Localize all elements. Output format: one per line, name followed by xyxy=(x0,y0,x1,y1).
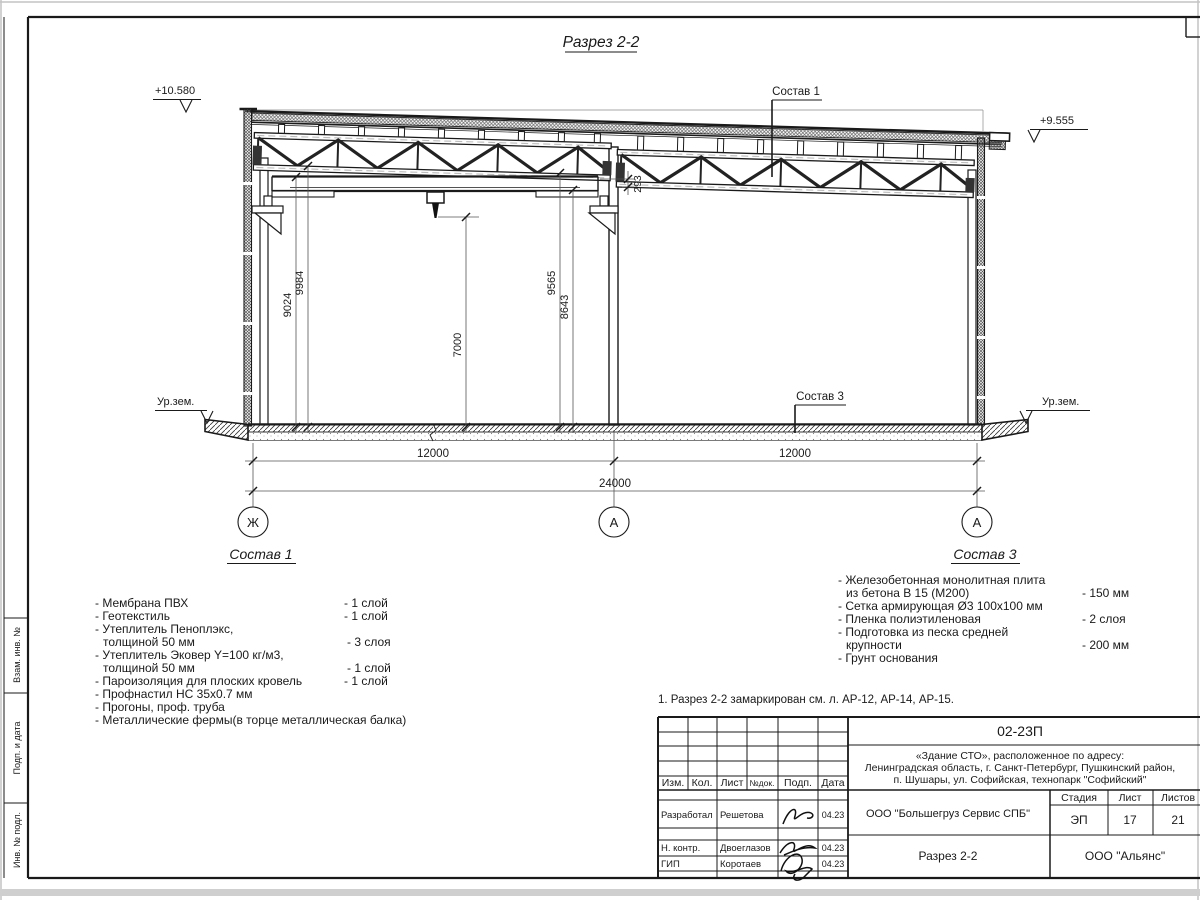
ground-level-right: Ур.зем. xyxy=(1020,396,1090,423)
list-item: - Прогоны, проф. труба xyxy=(95,700,225,714)
list-item: - Пароизоляция для плоских кровель xyxy=(95,674,302,688)
elev-top-left-value: +10.580 xyxy=(155,85,195,97)
drawing-sheet: Взам. инв. № Подп. и дата Инв. № подл. Р… xyxy=(0,0,1200,900)
signature-developer xyxy=(783,809,813,824)
horizontal-dimensions xyxy=(245,430,985,507)
right-column xyxy=(968,170,976,425)
axis-zh: Ж xyxy=(247,515,259,530)
role-ncontrol: Н. контр. xyxy=(661,843,700,854)
sostav3-title: Состав 3 xyxy=(953,546,1016,562)
dim-9565: 9565 xyxy=(546,271,558,295)
name-developer: Решетова xyxy=(720,810,764,821)
elevation-arrow xyxy=(180,100,192,112)
object-line3: п. Шушары, ул. Софийская, технопарк "Соф… xyxy=(894,774,1147,786)
list-item: - Геотекстиль xyxy=(95,609,170,623)
list-qty: - 200 мм xyxy=(1082,638,1129,652)
dim-293: 293 xyxy=(632,175,644,193)
sostav1-list: Состав 1 - Мембрана ПВХ- 1 слой - Геотек… xyxy=(95,546,406,727)
date-ncontrol: 04.23 xyxy=(822,843,845,853)
sostav3-list: Состав 3 - Железобетонная монолитная пли… xyxy=(838,546,1129,665)
col-data: Дата xyxy=(821,777,844,789)
list-value: 17 xyxy=(1123,813,1137,827)
list-item: - Подготовка из песка средней xyxy=(838,625,1008,639)
elevation-mark-top-left: +10.580 xyxy=(153,85,201,112)
list-item: толщиной 50 мм xyxy=(103,635,195,649)
col-list: Лист xyxy=(721,777,744,789)
view-title: Разрез 2-2 xyxy=(563,34,640,51)
name-ncontrol: Двоеглазов xyxy=(720,843,771,854)
list-item: - Профнастил НС 35х0.7 мм xyxy=(95,687,253,701)
elevation-arrow xyxy=(1028,130,1040,142)
list-qty: - 2 слоя xyxy=(1082,612,1126,626)
elev-top-right-value: +9.555 xyxy=(1040,115,1074,127)
dim-8643: 8643 xyxy=(559,295,571,319)
side-label-inv: Инв. № подл. xyxy=(12,812,22,868)
stage-value: ЭП xyxy=(1070,813,1087,827)
list-qty: - 3 слоя xyxy=(347,635,391,649)
date-developer: 04.23 xyxy=(822,810,845,820)
signature-gip xyxy=(781,854,812,880)
sostav1-title: Состав 1 xyxy=(229,546,292,562)
listov-value: 21 xyxy=(1171,813,1185,827)
list-item: крупности xyxy=(846,638,902,652)
leader-sostav3-label: Состав 3 xyxy=(796,391,844,403)
col-ndoc: №док. xyxy=(750,778,775,788)
dim-bay-left: 12000 xyxy=(417,448,449,460)
apron-right xyxy=(982,420,1028,441)
apron-left xyxy=(205,420,248,441)
axis-a-mid: А xyxy=(610,515,619,530)
client-name: ООО "Большегруз Сервис СПБ" xyxy=(866,808,1030,820)
dim-total: 24000 xyxy=(599,478,631,490)
sheet-note: 1. Разрез 2-2 замаркирован см. л. АР-12,… xyxy=(658,694,954,706)
list-item: - Утеплитель Эковер Y=100 кг/м3, xyxy=(95,648,284,662)
list-qty: - 1 слой xyxy=(347,661,391,675)
dim-7000: 7000 xyxy=(452,333,464,357)
dim-9024: 9024 xyxy=(282,293,294,317)
col-izm: Изм. xyxy=(662,777,685,789)
list-item: - Грунт основания xyxy=(838,651,938,665)
frame-side-labels: Взам. инв. № Подп. и дата Инв. № подл. xyxy=(12,627,22,868)
role-developer: Разработал xyxy=(661,810,713,821)
truss-right-bay xyxy=(615,135,975,197)
vertical-dimensions xyxy=(296,166,634,433)
ground-right-label: Ур.зем. xyxy=(1042,396,1079,408)
dim-bay-right: 12000 xyxy=(779,448,811,460)
list-item: - Пленка полиэтиленовая xyxy=(838,612,981,626)
col-podp: Подп. xyxy=(784,777,812,789)
section-view: 9024 9984 7000 9565 8643 293 12000 12000… xyxy=(153,85,1090,537)
stage-label: Стадия xyxy=(1061,792,1097,804)
dimension-ticks xyxy=(292,162,632,431)
list-qty: - 1 слой xyxy=(344,596,388,610)
list-item: - Утеплитель Пеноплэкс, xyxy=(95,622,233,636)
dim-9984: 9984 xyxy=(294,271,306,295)
object-line2: Ленинградская область, г. Санкт-Петербур… xyxy=(865,762,1175,774)
list-item: из бетона В 15 (М200) xyxy=(846,586,969,600)
roof-fascia xyxy=(989,133,1009,142)
truss-left-bay xyxy=(252,124,612,181)
elevation-mark-top-right: +9.555 xyxy=(1028,115,1088,142)
org-name: ООО "Альянс" xyxy=(1085,849,1165,863)
middle-column xyxy=(609,147,618,425)
list-item: - Металлические фермы(в торце металличес… xyxy=(95,713,406,727)
role-gip: ГИП xyxy=(661,859,680,870)
title-block: Изм. Кол. Лист №док. Подп. Дата Разработ… xyxy=(658,717,1200,880)
section-drawing-canvas: Взам. инв. № Подп. и дата Инв. № подл. Р… xyxy=(0,0,1200,900)
axis-bubbles: Ж А А xyxy=(238,507,992,537)
ground-left-label: Ур.зем. xyxy=(157,396,194,408)
crane-beam xyxy=(272,177,598,219)
side-label-vzam: Взам. инв. № xyxy=(12,627,22,683)
list-item: - Мембрана ПВХ xyxy=(95,596,188,610)
signature-ncontrol xyxy=(780,843,815,855)
date-gip: 04.23 xyxy=(822,859,845,869)
list-item: - Железобетонная монолитная плита xyxy=(838,573,1046,587)
list-label: Лист xyxy=(1119,792,1142,804)
name-gip: Коротаев xyxy=(720,859,761,870)
side-label-podp: Подп. и дата xyxy=(12,721,22,774)
signatures xyxy=(780,809,815,880)
list-item: толщиной 50 мм xyxy=(103,661,195,675)
doc-number: 02-23П xyxy=(997,723,1043,739)
list-item: - Сетка армирующая Ø3 100x100 мм xyxy=(838,599,1043,613)
listov-label: Листов xyxy=(1161,792,1196,804)
list-qty: - 1 слой xyxy=(344,674,388,688)
axis-a-right: А xyxy=(973,515,982,530)
object-line1: «Здание СТО», расположенное по адресу: xyxy=(916,750,1124,762)
sheet-name: Разрез 2-2 xyxy=(919,849,978,863)
list-qty: - 1 слой xyxy=(344,609,388,623)
leader-sostav1-label: Состав 1 xyxy=(772,86,820,98)
hoist-hook xyxy=(432,203,439,218)
hoist-trolley xyxy=(427,192,444,203)
col-kol: Кол. xyxy=(692,777,713,789)
list-qty: - 150 мм xyxy=(1082,586,1129,600)
